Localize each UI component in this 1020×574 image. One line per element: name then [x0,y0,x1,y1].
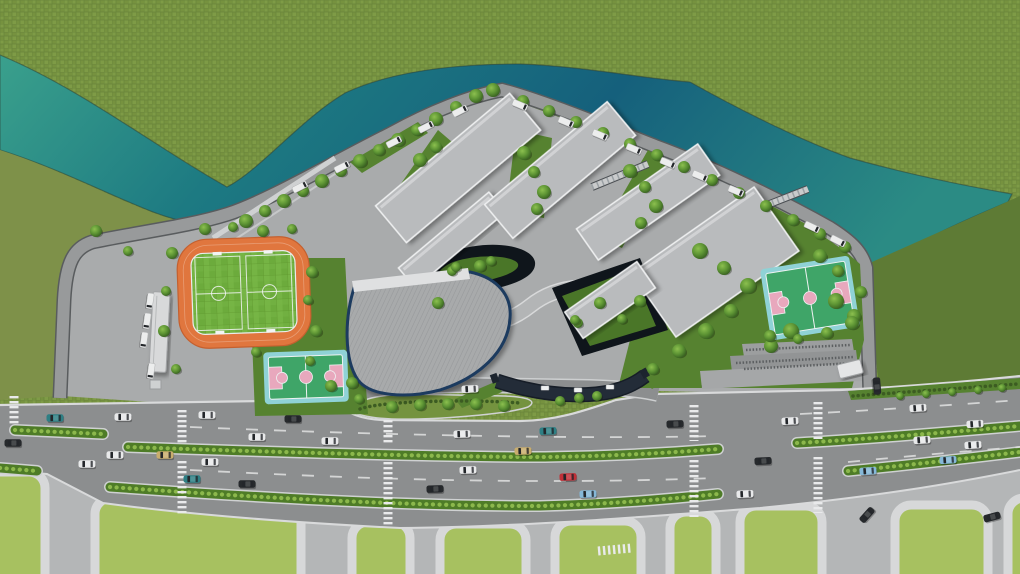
car [239,480,257,489]
car [157,451,175,460]
small-hut [150,380,161,389]
entrance-sign [541,386,549,391]
car [559,473,577,482]
car [913,436,931,446]
sports-pitch [191,250,298,335]
car [184,475,202,484]
car [579,490,597,499]
car [909,404,927,414]
basketball-court [263,350,349,405]
city-block [1008,498,1020,574]
car [754,457,772,467]
car [107,451,125,460]
car [939,456,957,466]
car [736,490,754,500]
car [285,415,303,424]
car [871,377,881,395]
city-block [895,505,988,574]
car [199,411,217,420]
car [666,420,684,429]
basketball-court [760,255,860,340]
car [426,485,444,494]
car [781,417,799,427]
car [514,447,532,456]
car [249,433,267,442]
site-plan-rendering: Top-down architectural rendering: green … [0,0,1020,574]
car [459,466,477,475]
athletics-track [176,236,312,350]
entrance-sign [574,388,582,393]
car [202,458,220,467]
city-block [670,512,716,574]
car [461,385,479,395]
city-block [352,522,410,574]
car [47,414,65,423]
car [453,430,471,439]
entrance-sign [606,385,614,390]
car [964,441,982,451]
car [5,439,23,448]
car [79,460,97,469]
site-plan-canvas: Aerial site-plan rendering of a riversid… [0,0,1020,574]
car [859,467,877,477]
city-block [0,472,45,574]
city-block [440,524,526,574]
car [322,437,340,446]
car [539,427,557,436]
car [966,420,984,430]
car [115,413,133,422]
city-block [740,506,822,574]
